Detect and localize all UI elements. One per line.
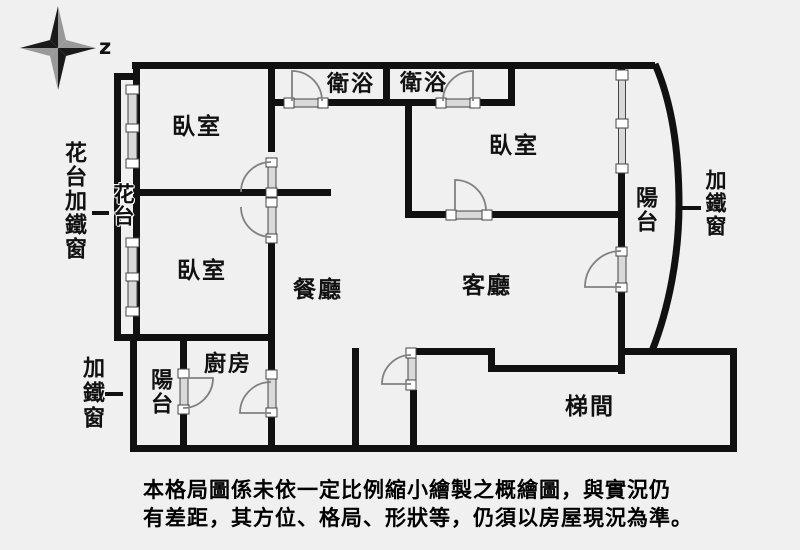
room-label-bathroom-1: 衛浴 (327, 74, 375, 96)
disclaimer-line-2: 有差距，其方位、格局、形狀等，仍須以房屋現況為準。 (143, 504, 693, 532)
disclaimer-line-1: 本格局圖係未依一定比例縮小繪製之概繪圖，與實況仍 (143, 476, 693, 504)
room-label-dining-room: 餐廳 (293, 279, 343, 302)
door-swing-icon (241, 198, 277, 243)
window-icon (616, 70, 628, 173)
door-swing-icon (585, 247, 627, 292)
door-swing-icon (382, 348, 416, 390)
compass-rose-icon (20, 6, 96, 90)
annotation-dash (105, 392, 123, 396)
compass-label: z (99, 35, 111, 59)
door-swing-icon (446, 180, 492, 220)
room-label-flower-bed-strip: 花台 (112, 183, 133, 227)
window-icon (126, 85, 139, 168)
room-label-bedroom-top-left: 臥室 (172, 116, 222, 139)
room-label-balcony-right: 陽台 (633, 186, 655, 234)
room-label-kitchen: 廚房 (204, 354, 252, 376)
room-label-stairwell: 梯間 (565, 396, 615, 419)
annotation-bottom-left-note: 加鐵窗 (80, 356, 102, 431)
window-icon (126, 238, 139, 316)
disclaimer-text: 本格局圖係未依一定比例縮小繪製之概繪圖，與實況仍 有差距，其方位、格局、形狀等，… (143, 476, 693, 532)
annotation-left-note: 花台加鐵窗 (62, 141, 84, 261)
room-label-balcony-bottom-left: 陽台 (148, 368, 170, 416)
room-label-living-room: 客廳 (462, 275, 512, 298)
annotation-right-note: 加鐵窗 (704, 169, 725, 238)
door-swing-icon (240, 370, 277, 417)
room-label-bedroom-bottom-left: 臥室 (177, 260, 227, 283)
room-label-bedroom-right: 臥室 (489, 135, 539, 158)
annotation-dash (92, 211, 109, 215)
floorplan-canvas: z 臥室 衛浴 衛浴 臥室 臥室 餐廳 客廳 廚房 梯間 陽台 陽台 花台 花台… (0, 0, 800, 550)
door-swing-icon (284, 71, 328, 108)
room-label-bathroom-2: 衛浴 (400, 73, 448, 95)
annotation-dash (682, 206, 701, 210)
